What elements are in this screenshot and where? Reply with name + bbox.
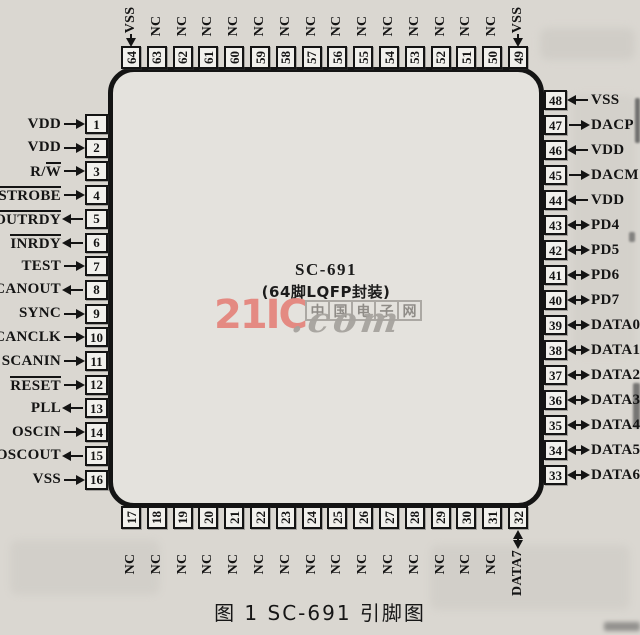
pin-15-box-number: 15 <box>90 449 103 462</box>
pin-46-row: VDD <box>568 140 640 160</box>
pin-35-box-number: 35 <box>549 419 562 432</box>
pin-52-label: NC <box>433 0 449 58</box>
pin-4-direction-arrow <box>63 190 84 200</box>
pin-20-box: 20 <box>198 506 218 529</box>
pin-42-box: 42 <box>544 240 567 260</box>
pin-1-row: VDD <box>0 114 84 134</box>
pin-43-box: 43 <box>544 215 567 235</box>
pin-49-box-number: 49 <box>512 51 525 64</box>
pin-12-direction-arrow <box>63 380 84 390</box>
pin-9-row: SYNC <box>0 304 84 324</box>
pin-35-direction-arrow <box>568 420 589 430</box>
pin-4-box: 4 <box>85 185 108 205</box>
pin-14-direction-arrow <box>63 427 84 437</box>
pin-61-label: NC <box>200 0 216 58</box>
pin-17-box: 17 <box>121 506 141 529</box>
pin-40-box: 40 <box>544 290 567 310</box>
pin-16-box-number: 16 <box>90 473 103 486</box>
pin-18-label: NC <box>149 532 165 596</box>
pin-26-box: 26 <box>353 506 373 529</box>
pin-42-row: PD5 <box>568 240 640 260</box>
pin-4-box-number: 4 <box>93 189 100 202</box>
pin-48-box-number: 48 <box>549 94 562 107</box>
pin-58-label: NC <box>278 0 294 58</box>
pin-48-label: VSS <box>591 93 619 108</box>
figure-caption: 图 1 SC-691 引脚图 <box>0 597 640 626</box>
pin-44-box: 44 <box>544 190 567 210</box>
pin-2-box: 2 <box>85 138 108 158</box>
bleed-through-smudge <box>540 28 635 60</box>
pin-60-label: NC <box>226 0 242 58</box>
pin-47-box: 47 <box>544 115 567 135</box>
pin-4-label: STROBE <box>0 186 61 204</box>
pin-48-direction-arrow <box>568 95 589 105</box>
pin-24-box: 24 <box>302 506 322 529</box>
pin-23-box-number: 23 <box>279 511 292 524</box>
pin-9-label: SYNC <box>19 306 61 321</box>
pin-13-row: PLL <box>0 398 84 418</box>
pin-35-box: 35 <box>544 415 567 435</box>
pin-37-box-number: 37 <box>549 369 562 382</box>
pin-9-direction-arrow <box>63 309 84 319</box>
pin-48-box: 48 <box>544 90 567 110</box>
pin-14-row: OSCIN <box>0 422 84 442</box>
pin-8-direction-arrow <box>63 285 84 295</box>
pin-44-row: VDD <box>568 190 640 210</box>
pin-45-direction-arrow <box>568 170 589 180</box>
pin-25-label: NC <box>329 532 345 596</box>
pin-1-box: 1 <box>85 114 108 134</box>
pin-13-direction-arrow <box>63 403 84 413</box>
pin-22-box: 22 <box>250 506 270 529</box>
pin-30-box: 30 <box>456 506 476 529</box>
pin-25-box-number: 25 <box>331 511 344 524</box>
pin-9-box: 9 <box>85 304 108 324</box>
pin-26-box-number: 26 <box>357 511 370 524</box>
pin-8-row: SCANOUT <box>0 280 84 300</box>
pin-10-direction-arrow <box>63 332 84 342</box>
pin-36-box: 36 <box>544 390 567 410</box>
pin-39-box: 39 <box>544 315 567 335</box>
pin-32-direction-arrow <box>513 531 523 548</box>
pin-39-row: DATA0 <box>568 315 640 335</box>
pin-31-label: NC <box>484 532 500 596</box>
pin-38-box-number: 38 <box>549 344 562 357</box>
pin-21-box: 21 <box>224 506 244 529</box>
pin-28-label: NC <box>407 532 423 596</box>
pin-5-box-number: 5 <box>93 212 100 225</box>
pin-48-row: VSS <box>568 90 640 110</box>
pin-17-label: NC <box>123 532 139 596</box>
pin-39-label: DATA0 <box>591 318 640 333</box>
pin-15-box: 15 <box>85 446 108 466</box>
pin-13-box-number: 13 <box>90 402 103 415</box>
pin-44-box-number: 44 <box>549 194 562 207</box>
pin-11-label: SCANIN <box>2 354 61 369</box>
pin-3-label: R/W <box>30 162 61 180</box>
pin-3-box-number: 3 <box>93 165 100 178</box>
pin-29-box-number: 29 <box>434 511 447 524</box>
pin-57-label: NC <box>304 0 320 58</box>
pin-8-box: 8 <box>85 280 108 300</box>
pin-51-label: NC <box>458 0 474 58</box>
pin-20-label: NC <box>200 532 216 596</box>
pin-64-box-number: 64 <box>125 51 138 64</box>
pin-33-label: DATA6 <box>591 468 640 483</box>
pin-40-row: PD7 <box>568 290 640 310</box>
pin-12-label: RESET <box>10 376 61 394</box>
pin-43-row: PD4 <box>568 215 640 235</box>
watermark-domain-suffix: .com <box>290 303 405 338</box>
pin-15-row: OSCOUT <box>0 446 84 466</box>
pin-45-row: DACM <box>568 165 640 185</box>
pin-14-label: OSCIN <box>12 425 61 440</box>
pin-33-row: DATA6 <box>568 465 640 485</box>
pin-41-label: PD6 <box>591 268 619 283</box>
pin-40-label: PD7 <box>591 293 619 308</box>
pin-5-row: OUTRDY <box>0 209 84 229</box>
pin-35-label: DATA4 <box>591 418 640 433</box>
pin-3-box: 3 <box>85 161 108 181</box>
pin-33-direction-arrow <box>568 470 589 480</box>
pin-23-label: NC <box>278 532 294 596</box>
pin-46-label: VDD <box>591 143 624 158</box>
pin-56-label: NC <box>329 0 345 58</box>
pin-22-label: NC <box>252 532 268 596</box>
pin-45-label: DACM <box>591 168 639 183</box>
pin-41-row: PD6 <box>568 265 640 285</box>
pin-22-box-number: 22 <box>254 511 267 524</box>
pin-41-box: 41 <box>544 265 567 285</box>
pin-3-row: R/W <box>0 161 84 181</box>
pin-8-label: SCANOUT <box>0 282 61 297</box>
pin-34-direction-arrow <box>568 445 589 455</box>
pin-45-box-number: 45 <box>549 169 562 182</box>
pin-63-label: NC <box>149 0 165 58</box>
pin-53-label: NC <box>407 0 423 58</box>
pin-42-direction-arrow <box>568 245 589 255</box>
pin-32-label: DATA7 <box>510 541 526 605</box>
pin-7-row: TEST <box>0 256 84 276</box>
pin-47-label: DACP <box>591 118 634 133</box>
pin-5-label-overline: OUTRDY <box>0 210 61 228</box>
pin-2-box-number: 2 <box>93 141 100 154</box>
pin-14-box: 14 <box>85 422 108 442</box>
pin-43-direction-arrow <box>568 220 589 230</box>
pin-38-direction-arrow <box>568 345 589 355</box>
pin-44-direction-arrow <box>568 195 589 205</box>
pin-7-box-number: 7 <box>93 260 100 273</box>
pin-47-row: DACP <box>568 115 640 135</box>
pin-2-direction-arrow <box>63 143 84 153</box>
pin-43-box-number: 43 <box>549 219 562 232</box>
pin-11-box: 11 <box>85 351 108 371</box>
pin-49-direction-arrow <box>513 33 523 46</box>
pin-5-label: OUTRDY <box>0 210 61 228</box>
pin-33-box: 33 <box>544 465 567 485</box>
pin-24-label: NC <box>304 532 320 596</box>
pin-17-box-number: 17 <box>125 511 138 524</box>
pin-15-label: OSCOUT <box>0 448 61 463</box>
pin-30-label: NC <box>458 532 474 596</box>
pin-36-label: DATA3 <box>591 393 640 408</box>
pin-2-row: VDD <box>0 138 84 158</box>
pin-8-box-number: 8 <box>93 283 100 296</box>
pin-21-box-number: 21 <box>228 511 241 524</box>
pin-21-label: NC <box>226 532 242 596</box>
pin-16-box: 16 <box>85 470 108 490</box>
pin-3-direction-arrow <box>63 166 84 176</box>
pin-32-box: 32 <box>508 506 528 529</box>
pin-28-box: 28 <box>405 506 425 529</box>
pin-16-direction-arrow <box>63 475 84 485</box>
pin-16-row: VSS <box>0 470 84 490</box>
pin-5-direction-arrow <box>63 214 84 224</box>
pin-25-box: 25 <box>327 506 347 529</box>
pin-55-label: NC <box>355 0 371 58</box>
pin-7-box: 7 <box>85 256 108 276</box>
pin-4-row: STROBE <box>0 185 84 205</box>
pin-7-label: TEST <box>21 259 61 274</box>
pin-10-box: 10 <box>85 327 108 347</box>
pin-6-direction-arrow <box>63 238 84 248</box>
pin-19-box: 19 <box>173 506 193 529</box>
pin-37-row: DATA2 <box>568 365 640 385</box>
pin-34-box: 34 <box>544 440 567 460</box>
pin-40-direction-arrow <box>568 295 589 305</box>
pin-10-label: SCANCLK <box>0 330 61 345</box>
pin-11-direction-arrow <box>63 356 84 366</box>
pin-31-box: 31 <box>482 506 502 529</box>
pin-37-direction-arrow <box>568 370 589 380</box>
pin-43-label: PD4 <box>591 218 619 233</box>
pin-39-direction-arrow <box>568 320 589 330</box>
pinout-figure: SC-691 (64脚LQFP封装) VDD1VDD2R/W3STROBE4OU… <box>0 0 640 635</box>
pin-15-direction-arrow <box>63 451 84 461</box>
pin-37-label: DATA2 <box>591 368 640 383</box>
pin-62-label: NC <box>175 0 191 58</box>
pin-6-box: 6 <box>85 233 108 253</box>
pin-34-box-number: 34 <box>549 444 562 457</box>
pin-42-label: PD5 <box>591 243 619 258</box>
pin-11-box-number: 11 <box>90 355 102 368</box>
pin-38-box: 38 <box>544 340 567 360</box>
pin-29-label: NC <box>433 532 449 596</box>
pin-59-label: NC <box>252 0 268 58</box>
pin-5-box: 5 <box>85 209 108 229</box>
pin-36-direction-arrow <box>568 395 589 405</box>
pin-29-box: 29 <box>431 506 451 529</box>
pin-6-label: INRDY <box>10 234 61 252</box>
pin-64-direction-arrow <box>126 33 136 46</box>
pin-35-row: DATA4 <box>568 415 640 435</box>
pin-46-box-number: 46 <box>549 144 562 157</box>
pin-2-label: VDD <box>28 140 61 155</box>
pin-32-box-number: 32 <box>512 511 525 524</box>
pin-38-label: DATA1 <box>591 343 640 358</box>
pin-7-direction-arrow <box>63 261 84 271</box>
pin-12-row: RESET <box>0 375 84 395</box>
pin-27-label: NC <box>381 532 397 596</box>
pin-12-box: 12 <box>85 375 108 395</box>
pin-46-box: 46 <box>544 140 567 160</box>
pin-36-box-number: 36 <box>549 394 562 407</box>
pin-34-row: DATA5 <box>568 440 640 460</box>
pin-54-label: NC <box>381 0 397 58</box>
pin-20-box-number: 20 <box>202 511 215 524</box>
pin-47-box-number: 47 <box>549 119 562 132</box>
pin-39-box-number: 39 <box>549 319 562 332</box>
pin-14-box-number: 14 <box>90 426 103 439</box>
pin-36-row: DATA3 <box>568 390 640 410</box>
pin-3-label-overline: W <box>46 162 61 180</box>
pin-34-label: DATA5 <box>591 443 640 458</box>
pin-13-box: 13 <box>85 398 108 418</box>
pin-12-box-number: 12 <box>90 378 103 391</box>
pin-41-box-number: 41 <box>549 269 562 282</box>
chip-package-label: (64脚LQFP封装) <box>108 281 544 302</box>
pin-10-row: SCANCLK <box>0 327 84 347</box>
pin-45-box: 45 <box>544 165 567 185</box>
pin-40-box-number: 40 <box>549 294 562 307</box>
pin-13-label: PLL <box>31 401 61 416</box>
pin-12-label-overline: RESET <box>10 376 61 394</box>
pin-1-label: VDD <box>28 117 61 132</box>
pin-46-direction-arrow <box>568 145 589 155</box>
pin-38-row: DATA1 <box>568 340 640 360</box>
pin-11-row: SCANIN <box>0 351 84 371</box>
pin-6-box-number: 6 <box>93 236 100 249</box>
pin-18-box-number: 18 <box>150 511 163 524</box>
pin-27-box: 27 <box>379 506 399 529</box>
pin-37-box: 37 <box>544 365 567 385</box>
pin-30-box-number: 30 <box>460 511 473 524</box>
pin-28-box-number: 28 <box>408 511 421 524</box>
chip-name: SC-691 <box>108 260 544 280</box>
pin-19-label: NC <box>175 532 191 596</box>
pin-26-label: NC <box>355 532 371 596</box>
pin-47-direction-arrow <box>568 120 589 130</box>
pin-50-label: NC <box>484 0 500 58</box>
pin-6-label-overline: INRDY <box>10 234 61 252</box>
pin-44-label: VDD <box>591 193 624 208</box>
pin-18-box: 18 <box>147 506 167 529</box>
pin-1-box-number: 1 <box>93 118 100 131</box>
pin-6-row: INRDY <box>0 233 84 253</box>
pin-41-direction-arrow <box>568 270 589 280</box>
pin-27-box-number: 27 <box>383 511 396 524</box>
pin-24-box-number: 24 <box>305 511 318 524</box>
pin-4-label-overline: STROBE <box>0 186 61 204</box>
pin-33-box-number: 33 <box>549 469 562 482</box>
pin-31-box-number: 31 <box>486 511 499 524</box>
pin-9-box-number: 9 <box>93 307 100 320</box>
pin-23-box: 23 <box>276 506 296 529</box>
pin-10-box-number: 10 <box>90 331 103 344</box>
pin-19-box-number: 19 <box>176 511 189 524</box>
pin-1-direction-arrow <box>63 119 84 129</box>
pin-16-label: VSS <box>33 472 61 487</box>
pin-42-box-number: 42 <box>549 244 562 257</box>
